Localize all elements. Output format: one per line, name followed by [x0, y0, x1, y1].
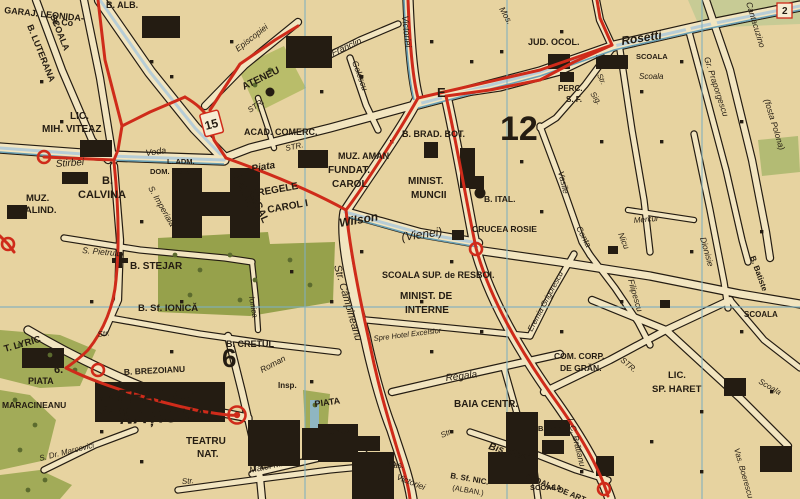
place-label: MUZ. AMAN	[338, 151, 389, 161]
place-label: NAT.	[197, 449, 219, 460]
street-label: Str.	[182, 476, 195, 486]
place-label: SCOALA	[636, 52, 668, 61]
place-label: TEATRU	[186, 436, 226, 447]
teatrul-national-label: TEATRUL	[117, 384, 205, 408]
place-label: CALIND.	[18, 205, 57, 216]
place-label: B. BRAD. BOT.	[402, 129, 465, 139]
street-label: Scoala	[639, 72, 664, 81]
place-label: PERC.	[558, 84, 582, 93]
place-label: MIH. VITEAZ	[42, 124, 101, 135]
place-label: B. ALB.	[106, 0, 138, 10]
place-label: Insp.	[278, 381, 297, 390]
place-label: PIATA	[28, 376, 54, 386]
place-label: SCOALA	[744, 310, 778, 319]
place-label: MUZ.	[26, 193, 49, 204]
route-badge-2: 2	[782, 6, 788, 17]
street-label: Stirbei	[55, 157, 85, 170]
district-number-6: 6	[222, 343, 236, 373]
street-label: NAȚIONAL	[119, 405, 218, 429]
place-label: MINIST.	[408, 176, 444, 187]
place-label: DE GRĂN.	[560, 363, 602, 373]
district-number-12: 12	[500, 110, 538, 148]
place-label: COM. CORP.	[554, 351, 604, 361]
route-badge-e: E	[437, 85, 446, 100]
map-canvas: GARAJ. LEONIDA-& CoSCOALAB. LUTERANAB. A…	[0, 0, 800, 499]
place-label: MARACINEANU	[2, 400, 66, 410]
place-label: S. F.	[566, 95, 582, 104]
city-street-map: GARAJ. LEONIDA-& CoSCOALAB. LUTERANAB. A…	[0, 0, 800, 499]
biserica-stejar-label: B. STEJAR	[130, 261, 183, 272]
place-label: INTERNE	[405, 305, 449, 316]
route-badge-6: 6.	[54, 364, 63, 376]
liceul-spiru-haret-label: SP. HARET	[652, 384, 702, 395]
place-label: B.	[102, 175, 113, 187]
place-label: DOM. COR.	[150, 167, 190, 176]
place-label: SCOALA	[530, 483, 562, 492]
place-label: CRUCEA ROSIE	[472, 224, 537, 234]
place-label: MINIST. DE	[400, 291, 453, 302]
place-label: L. ADM.	[167, 157, 195, 166]
place-label: FUNDAT.	[328, 165, 370, 176]
place-label: SCOALA SUP. de RESBOI.	[382, 270, 495, 280]
baia-centrala-label: BAIA CENTR.	[454, 399, 518, 410]
place-label: B. ITAL.	[484, 194, 515, 204]
place-label: B. Ene	[538, 424, 561, 433]
place-label: ACAD. COMERC.	[244, 127, 318, 137]
place-label: B. Sf. IONICĂ	[138, 303, 198, 314]
place-label: JUD. OCOL.	[528, 37, 580, 47]
street-label: Str.	[97, 328, 110, 339]
place-label: LIC.	[70, 111, 89, 122]
place-label: MUNCII	[411, 190, 447, 201]
place-label: CALVINA	[78, 189, 126, 201]
street-label: Pas.	[388, 461, 404, 470]
place-label: CAROL	[332, 179, 368, 190]
place-label: LIC.	[668, 370, 686, 381]
